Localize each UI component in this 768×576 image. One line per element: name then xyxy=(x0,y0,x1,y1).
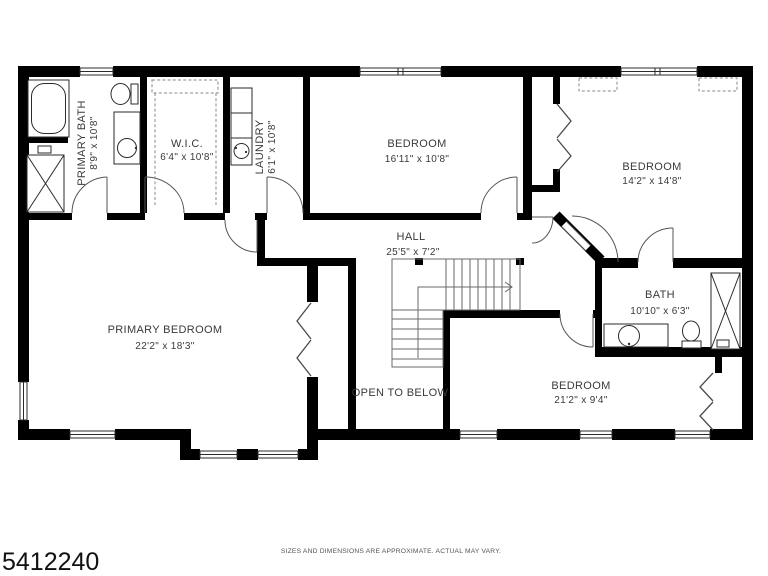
toilet-primary xyxy=(111,84,138,105)
window-top-bedroom-1 xyxy=(360,66,441,77)
closet-bifold-bedroom-3 xyxy=(700,373,713,430)
sink-bath xyxy=(604,324,668,347)
primary-bedroom-dims: 22'2" x 18'3" xyxy=(135,341,194,352)
closet-bifold-primary-bedroom xyxy=(297,303,311,376)
open-to-below-label: OPEN TO BELOW xyxy=(352,387,449,399)
primary-bath-name: PRIMARY BATH xyxy=(76,100,88,186)
door-laundry xyxy=(267,177,303,213)
wic-name: W.I.C. xyxy=(171,138,203,150)
laundry-fixtures xyxy=(231,88,252,165)
bedroom-2-name: BEDROOM xyxy=(622,161,681,173)
bedroom-1-name: BEDROOM xyxy=(387,138,446,150)
shower-valve xyxy=(38,146,51,153)
window-bottom-primary-bedroom-3 xyxy=(258,449,298,460)
hall-dims: 25'5" x 7'2" xyxy=(386,247,440,258)
stair-direction-arrow xyxy=(418,282,512,358)
door-hall-end xyxy=(532,217,553,243)
door-primary-bedroom xyxy=(225,220,257,252)
bedroom-2-dims: 14'2" x 14'8" xyxy=(622,176,681,187)
door-wic xyxy=(145,177,184,213)
window-bottom-primary-bedroom-2 xyxy=(200,449,237,460)
laundry-sink xyxy=(231,138,252,165)
laundry-name: LAUNDRY xyxy=(254,119,266,174)
primary-bedroom-name: PRIMARY BEDROOM xyxy=(108,324,223,336)
window-bottom-bedroom-3-2 xyxy=(580,429,612,440)
toilet-bath xyxy=(682,321,701,348)
room-label-primary-bedroom: PRIMARY BEDROOM 22'2" x 18'3" xyxy=(108,324,223,352)
window-bottom-bedroom-3-3 xyxy=(675,429,710,440)
bedroom-2-storage xyxy=(579,78,737,91)
bath-dims: 10'10" x 6'3" xyxy=(630,306,689,317)
room-label-open-to-below: OPEN TO BELOW xyxy=(352,387,449,399)
room-label-bedroom-3: BEDROOM 21'2" x 9'4" xyxy=(551,380,610,406)
window-top-primary-bath xyxy=(80,66,113,77)
room-label-laundry: LAUNDRY 6'1" x 10'8" xyxy=(254,119,278,174)
bath-name: BATH xyxy=(645,289,675,301)
room-label-bedroom-1: BEDROOM 16'11" x 10'8" xyxy=(385,138,450,165)
room-label-bedroom-2: BEDROOM 14'2" x 14'8" xyxy=(622,161,681,187)
window-top-bedroom-2 xyxy=(621,66,697,77)
wic-dims: 6'4" x 10'8" xyxy=(160,152,214,163)
shower xyxy=(27,146,64,212)
window-left-primary-bedroom xyxy=(18,382,29,420)
floor-plan-page: PRIMARY BATH 8'9" x 10'8" W.I.C. 6'4" x … xyxy=(0,0,768,576)
room-label-hall: HALL 25'5" x 7'2" xyxy=(386,231,440,258)
disclaimer-text: SIZES AND DIMENSIONS ARE APPROXIMATE. AC… xyxy=(281,548,501,555)
sink-primary xyxy=(114,112,140,164)
bedroom-3-name: BEDROOM xyxy=(551,380,610,392)
closet-bifold-bedroom-2 xyxy=(557,104,571,172)
shower-bath xyxy=(711,273,740,349)
floor-plan: PRIMARY BATH 8'9" x 10'8" W.I.C. 6'4" x … xyxy=(0,0,768,576)
stair-treads-upper xyxy=(446,259,510,310)
door-bedroom-3 xyxy=(560,314,593,347)
bedroom-1-dims: 16'11" x 10'8" xyxy=(385,154,450,165)
bedroom-3-dims: 21'2" x 9'4" xyxy=(554,395,608,406)
hall-name: HALL xyxy=(397,231,426,243)
room-label-primary-bath: PRIMARY BATH 8'9" x 10'8" xyxy=(76,100,100,186)
window-bottom-primary-bedroom-1 xyxy=(70,429,115,440)
doors xyxy=(72,177,673,347)
window-bottom-bedroom-3-1 xyxy=(460,429,497,440)
room-label-bath: BATH 10'10" x 6'3" xyxy=(630,289,689,317)
room-label-wic: W.I.C. 6'4" x 10'8" xyxy=(160,138,214,163)
door-bedroom-1 xyxy=(481,177,517,213)
door-bath xyxy=(638,228,673,262)
laundry-dims: 6'1" x 10'8" xyxy=(267,120,278,174)
primary-bath-dims: 8'9" x 10'8" xyxy=(89,116,100,170)
listing-id: 5412240 xyxy=(2,548,99,576)
